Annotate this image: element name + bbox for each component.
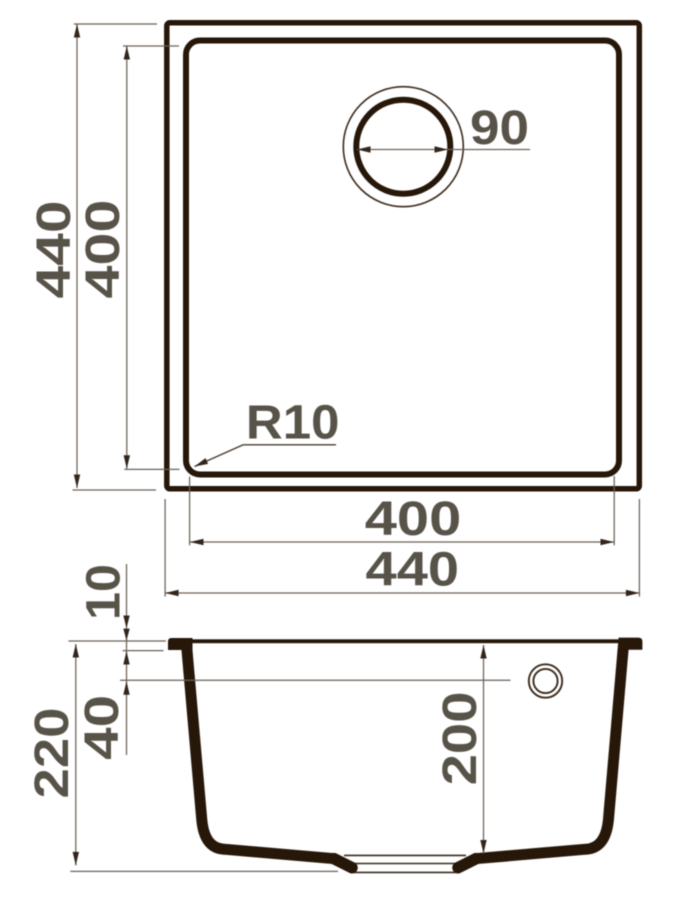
svg-text:400: 400	[77, 200, 130, 299]
svg-text:440: 440	[28, 201, 81, 299]
svg-text:220: 220	[26, 708, 79, 799]
svg-text:90: 90	[470, 102, 529, 155]
svg-text:10: 10	[77, 564, 130, 620]
svg-text:400: 400	[365, 493, 462, 546]
svg-text:40: 40	[76, 695, 129, 760]
svg-text:R10: R10	[246, 397, 340, 450]
svg-text:200: 200	[434, 691, 487, 785]
svg-text:440: 440	[366, 543, 460, 596]
